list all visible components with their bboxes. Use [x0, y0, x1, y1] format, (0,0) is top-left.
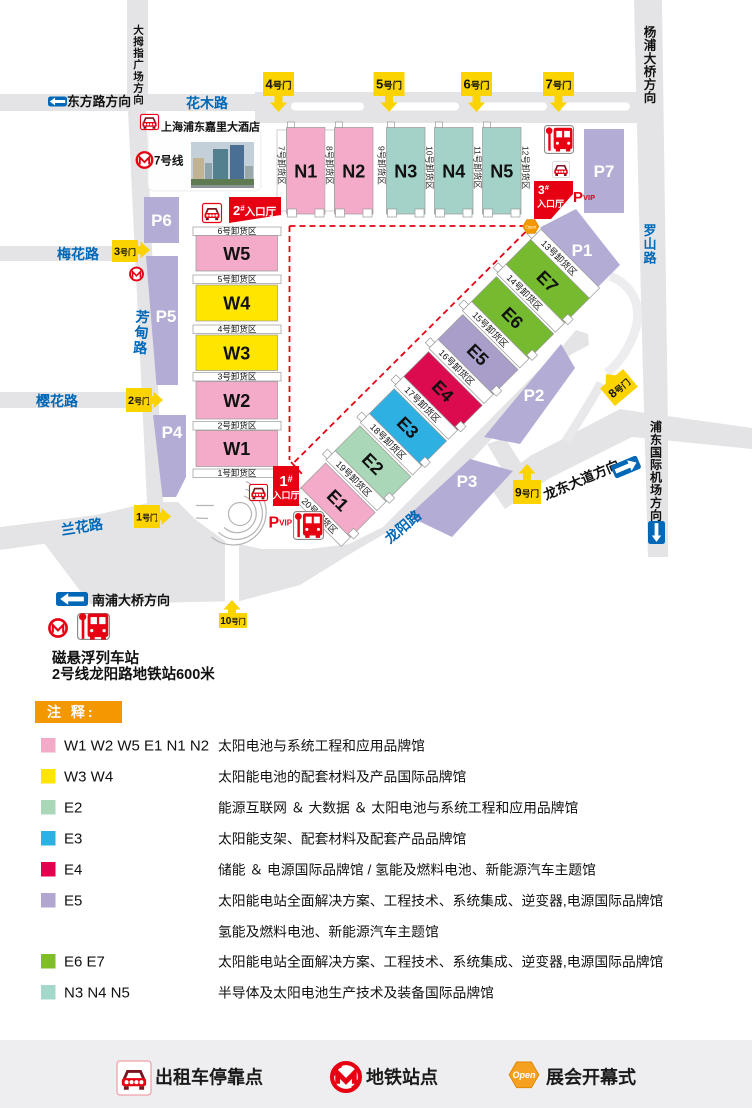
- svg-text:太阳能电池的配套材料及产品国际品牌馆: 太阳能电池的配套材料及产品国际品牌馆: [218, 769, 466, 785]
- svg-text:3号门: 3号门: [114, 246, 136, 258]
- svg-text:7号线: 7号线: [154, 154, 184, 168]
- svg-text:入口厅: 入口厅: [271, 491, 299, 501]
- svg-text:10号卸货区: 10号卸货区: [425, 146, 435, 190]
- svg-text:方: 方: [133, 81, 144, 94]
- svg-text:P3: P3: [457, 472, 478, 491]
- svg-text:太阳能支架、配套材料及配套产品品牌馆: 太阳能支架、配套材料及配套产品品牌馆: [218, 831, 466, 847]
- svg-text:E3: E3: [64, 831, 82, 848]
- svg-text:方: 方: [644, 77, 657, 92]
- svg-text:1号卸货区: 1号卸货区: [218, 468, 257, 478]
- svg-text:N5: N5: [490, 161, 513, 181]
- svg-text:大: 大: [644, 51, 657, 66]
- svg-text:拇: 拇: [133, 35, 144, 48]
- svg-text:N2: N2: [342, 161, 365, 181]
- svg-text:7号卸货区: 7号卸货区: [277, 146, 287, 185]
- svg-text:氢能及燃料电池、新能源汽车主题馆: 氢能及燃料电池、新能源汽车主题馆: [218, 924, 439, 940]
- svg-text:储能 ＆ 电源国际品牌馆 / 氢能及燃料电池、新能源汽车主题: 储能 ＆ 电源国际品牌馆 / 氢能及燃料电池、新能源汽车主题馆: [218, 862, 596, 878]
- svg-text:4号卸货区: 4号卸货区: [218, 324, 257, 334]
- svg-text:P6: P6: [151, 211, 172, 230]
- svg-text:W1 W2 W5 E1 N1 N2: W1 W2 W5 E1 N1 N2: [64, 738, 209, 755]
- svg-text:9号卸货区: 9号卸货区: [377, 146, 387, 185]
- svg-text:樱花路: 樱花路: [36, 393, 79, 409]
- svg-text:广: 广: [133, 58, 144, 71]
- svg-text:5号卸货区: 5号卸货区: [218, 274, 257, 284]
- svg-text:指: 指: [133, 47, 144, 60]
- svg-text:向: 向: [644, 90, 657, 105]
- svg-text:出租车停靠点: 出租车停靠点: [155, 1067, 263, 1088]
- svg-text:11号卸货区: 11号卸货区: [473, 146, 483, 189]
- svg-text:东方路方向: 东方路方向: [67, 94, 131, 109]
- svg-text:杨: 杨: [644, 25, 657, 40]
- svg-text:W5: W5: [223, 244, 250, 264]
- svg-text:E5: E5: [64, 893, 82, 910]
- svg-text:E4: E4: [64, 862, 82, 879]
- svg-text:能源互联网 ＆ 大数据 ＆ 太阳电池与系统工程和应用品牌馆: 能源互联网 ＆ 大数据 ＆ 太阳电池与系统工程和应用品牌馆: [218, 800, 578, 816]
- svg-text:向: 向: [650, 507, 662, 522]
- svg-text:W3 W4: W3 W4: [64, 769, 113, 786]
- svg-text:1号门: 1号门: [136, 511, 158, 523]
- svg-text:2号卸货区: 2号卸货区: [218, 420, 257, 430]
- svg-text:桥: 桥: [644, 64, 657, 79]
- svg-text:W1: W1: [223, 439, 250, 459]
- svg-text:2号线龙阳路地铁站600米: 2号线龙阳路地铁站600米: [52, 665, 215, 683]
- svg-text:花木路: 花木路: [186, 95, 229, 111]
- svg-text:南浦大桥方向: 南浦大桥方向: [92, 593, 170, 608]
- svg-text:W4: W4: [223, 294, 250, 314]
- svg-text:12号卸货区: 12号卸货区: [521, 146, 531, 190]
- svg-text:磁悬浮列车站: 磁悬浮列车站: [52, 649, 139, 667]
- svg-text:10号门: 10号门: [220, 616, 246, 627]
- svg-text:N4: N4: [442, 161, 465, 181]
- svg-text:上海浦东嘉里大酒店: 上海浦东嘉里大酒店: [161, 120, 260, 134]
- svg-text:P2: P2: [524, 386, 545, 405]
- svg-text:Open: Open: [525, 224, 537, 229]
- svg-text:太阳能电站全面解决方案、工程技术、系统集成、逆变器,电源国际: 太阳能电站全面解决方案、工程技术、系统集成、逆变器,电源国际品牌馆: [218, 954, 663, 970]
- svg-text:地铁站点: 地铁站点: [366, 1067, 438, 1088]
- svg-text:大: 大: [133, 23, 144, 36]
- svg-text:P4: P4: [162, 423, 183, 442]
- svg-text:P1: P1: [572, 241, 593, 260]
- svg-text:9号门: 9号门: [515, 485, 539, 499]
- svg-text:太阳电池与系统工程和应用品牌馆: 太阳电池与系统工程和应用品牌馆: [218, 738, 425, 754]
- svg-text:向: 向: [133, 93, 144, 106]
- svg-text:芳: 芳: [135, 308, 150, 325]
- svg-text:3号卸货区: 3号卸货区: [218, 371, 257, 381]
- svg-text:N3: N3: [394, 161, 417, 181]
- svg-text:太阳能电站全面解决方案、工程技术、系统集成、逆变器,电源国际: 太阳能电站全面解决方案、工程技术、系统集成、逆变器,电源国际品牌馆: [218, 893, 663, 909]
- svg-text:P7: P7: [594, 162, 615, 181]
- svg-text:E6 E7: E6 E7: [64, 954, 105, 971]
- svg-text:N3 N4 N5: N3 N4 N5: [64, 985, 130, 1002]
- svg-text:注 释:: 注 释:: [47, 704, 96, 720]
- svg-text:W2: W2: [223, 391, 250, 411]
- svg-text:梅花路: 梅花路: [57, 246, 100, 262]
- svg-text:场: 场: [133, 70, 144, 83]
- svg-text:E2: E2: [64, 800, 82, 817]
- svg-text:Open: Open: [512, 1070, 536, 1080]
- svg-text:2#入口厅: 2#入口厅: [233, 203, 277, 218]
- svg-text:6号卸货区: 6号卸货区: [218, 226, 257, 236]
- svg-text:甸: 甸: [133, 324, 149, 341]
- svg-text:W3: W3: [223, 343, 250, 363]
- svg-text:路: 路: [133, 339, 149, 356]
- svg-text:入口厅: 入口厅: [536, 199, 564, 209]
- svg-text:路: 路: [643, 250, 657, 265]
- svg-text:半导体及太阳电池生产技术及装备国际品牌馆: 半导体及太阳电池生产技术及装备国际品牌馆: [218, 985, 494, 1001]
- svg-text:8号卸货区: 8号卸货区: [325, 146, 335, 185]
- svg-text:N1: N1: [294, 161, 317, 181]
- svg-text:P5: P5: [156, 307, 177, 326]
- svg-text:浦: 浦: [644, 38, 657, 53]
- svg-text:2号门: 2号门: [128, 395, 150, 407]
- svg-text:展会开幕式: 展会开幕式: [546, 1067, 636, 1088]
